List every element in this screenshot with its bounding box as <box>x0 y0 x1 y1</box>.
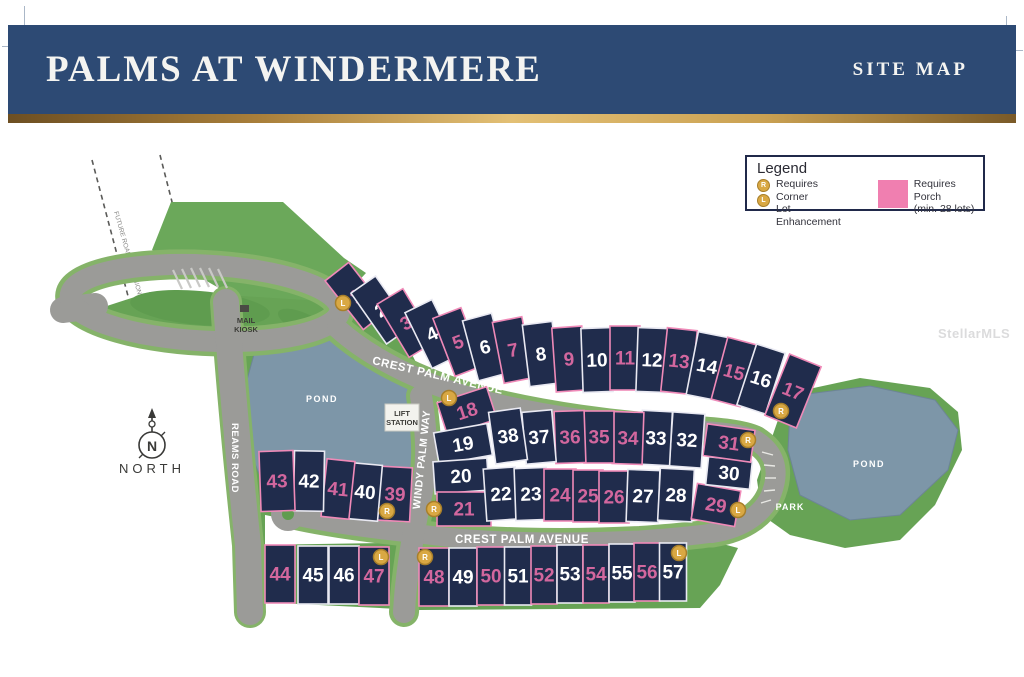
legend-box: Legend R L Requires Corner Lot Enhanceme… <box>745 155 985 211</box>
street-label-reams-road: REAMS ROAD <box>229 423 240 493</box>
lot-number-37: 37 <box>528 427 551 450</box>
lot-57-badge-L: L <box>672 546 687 561</box>
lot-38: 38 <box>489 408 528 464</box>
svg-text:L: L <box>447 394 452 403</box>
lot-number-14: 14 <box>694 355 719 380</box>
lot-number-43: 43 <box>266 471 288 493</box>
lot-52: 52 <box>531 546 557 604</box>
lot-number-56: 56 <box>636 563 657 584</box>
lot-number-41: 41 <box>326 478 350 501</box>
lot-number-13: 13 <box>667 350 690 373</box>
lot-number-38: 38 <box>496 425 520 449</box>
lot-number-52: 52 <box>533 566 554 587</box>
lot-24: 24 <box>544 469 576 521</box>
lot-number-47: 47 <box>363 567 384 588</box>
lot-number-48: 48 <box>423 568 444 589</box>
lot-number-21: 21 <box>453 500 475 521</box>
north-label: NORTH <box>119 461 185 476</box>
pond-left-label: POND <box>306 394 338 404</box>
lot-number-45: 45 <box>302 566 324 587</box>
lot-48-badge-R: R <box>418 550 433 565</box>
legend-porch-text: Requires Porch (min. 28 lots) <box>914 178 975 216</box>
lot-number-12: 12 <box>641 350 663 372</box>
lot-23: 23 <box>514 467 548 520</box>
svg-text:R: R <box>778 407 784 416</box>
lot-34: 34 <box>612 411 644 464</box>
lot-32: 32 <box>669 412 705 468</box>
lot-29-badge-L: L <box>731 503 746 518</box>
lot-number-42: 42 <box>298 471 320 492</box>
lot-27: 27 <box>626 469 660 522</box>
lot-number-10: 10 <box>586 350 608 372</box>
lot-35: 35 <box>584 411 614 463</box>
lot-number-26: 26 <box>603 488 624 509</box>
mail-kiosk-icon <box>240 305 249 312</box>
svg-text:R: R <box>745 436 751 445</box>
lot-number-23: 23 <box>520 484 542 506</box>
lot-number-49: 49 <box>452 568 473 589</box>
lot-enhancement-icon: L <box>757 194 770 207</box>
lot-18-badge-L: L <box>442 391 457 406</box>
lot-number-25: 25 <box>577 487 599 508</box>
lot-42: 42 <box>293 451 324 512</box>
svg-text:R: R <box>431 505 437 514</box>
lot-number-33: 33 <box>645 428 667 450</box>
pond-right-label: POND <box>853 459 885 469</box>
lot-39-badge-R: R <box>380 504 395 519</box>
lot-17-badge-R: R <box>774 404 789 419</box>
site-plan-map: FUTURE ROAD EXPANSION <box>0 0 1024 677</box>
lot-10: 10 <box>581 327 613 392</box>
lot-49: 49 <box>449 548 477 606</box>
lot-number-53: 53 <box>559 565 580 586</box>
svg-text:L: L <box>341 299 346 308</box>
lot-number-39: 39 <box>384 484 406 506</box>
lot-number-29: 29 <box>704 494 728 518</box>
requires-porch-swatch <box>878 180 908 208</box>
north-compass: N NORTH <box>119 408 185 476</box>
lot-44: 44 <box>265 545 295 603</box>
lot-number-35: 35 <box>588 428 610 449</box>
svg-text:R: R <box>384 507 390 516</box>
lot-number-54: 54 <box>585 565 607 586</box>
lot-41: 41 <box>321 459 355 520</box>
lot-21-badge-R: R <box>427 502 442 517</box>
lot-number-19: 19 <box>451 433 475 457</box>
lot-28: 28 <box>658 468 695 522</box>
svg-text:L: L <box>736 506 741 515</box>
lot-number-34: 34 <box>617 428 639 450</box>
lot-number-55: 55 <box>611 564 633 585</box>
lot-number-51: 51 <box>507 567 529 588</box>
lot-number-11: 11 <box>615 349 636 370</box>
lot-number-20: 20 <box>450 466 473 488</box>
lot-53: 53 <box>557 545 583 603</box>
lot-56: 56 <box>634 543 660 601</box>
watermark: StellarMLS <box>938 326 1010 341</box>
lot-43: 43 <box>259 450 295 511</box>
legend-corner-text: Requires Corner Lot Enhancement <box>776 178 846 228</box>
lot-20: 20 <box>433 458 489 494</box>
lot-55: 55 <box>609 544 635 602</box>
lot-number-22: 22 <box>490 484 513 506</box>
lot-26: 26 <box>599 471 629 523</box>
lot-50: 50 <box>477 547 505 605</box>
lot-number-24: 24 <box>549 486 571 507</box>
lot-21: 21 <box>437 492 491 526</box>
lot-1-badge-L: L <box>336 296 351 311</box>
lot-54: 54 <box>583 545 609 603</box>
lot-number-46: 46 <box>333 566 354 587</box>
lot-number-32: 32 <box>676 430 699 452</box>
svg-text:L: L <box>379 553 384 562</box>
lot-number-50: 50 <box>480 567 501 588</box>
lot-36: 36 <box>554 410 586 463</box>
requires-corner-icon: R <box>757 179 770 192</box>
park-label: PARK <box>776 502 805 512</box>
lot-45: 45 <box>298 546 328 604</box>
lot-33: 33 <box>640 410 673 465</box>
legend-title: Legend <box>757 160 975 177</box>
lift-station-label: STATION <box>386 418 418 427</box>
lot-47-badge-L: L <box>374 550 389 565</box>
lot-number-28: 28 <box>665 485 687 507</box>
svg-text:R: R <box>422 553 428 562</box>
lot-number-36: 36 <box>559 427 581 449</box>
lot-22: 22 <box>483 467 519 521</box>
lot-number-40: 40 <box>353 482 376 505</box>
svg-text:L: L <box>677 549 682 558</box>
lift-station-label: LIFT <box>394 409 410 418</box>
lot-51: 51 <box>505 547 532 605</box>
lot-number-9: 9 <box>563 349 575 371</box>
north-n: N <box>147 438 157 454</box>
lot-number-27: 27 <box>632 486 654 508</box>
lot-number-57: 57 <box>662 563 683 584</box>
mail-kiosk-label: KIOSK <box>234 325 258 334</box>
lot-number-44: 44 <box>269 565 291 586</box>
lot-number-30: 30 <box>717 462 740 485</box>
lot-46: 46 <box>329 546 359 604</box>
lot-number-31: 31 <box>717 432 741 456</box>
site-map-page: PALMS AT WINDERMERE SITE MAP FUTURE ROAD… <box>0 0 1024 677</box>
lot-31-badge-R: R <box>741 433 756 448</box>
mail-kiosk-label: MAIL <box>237 316 256 325</box>
